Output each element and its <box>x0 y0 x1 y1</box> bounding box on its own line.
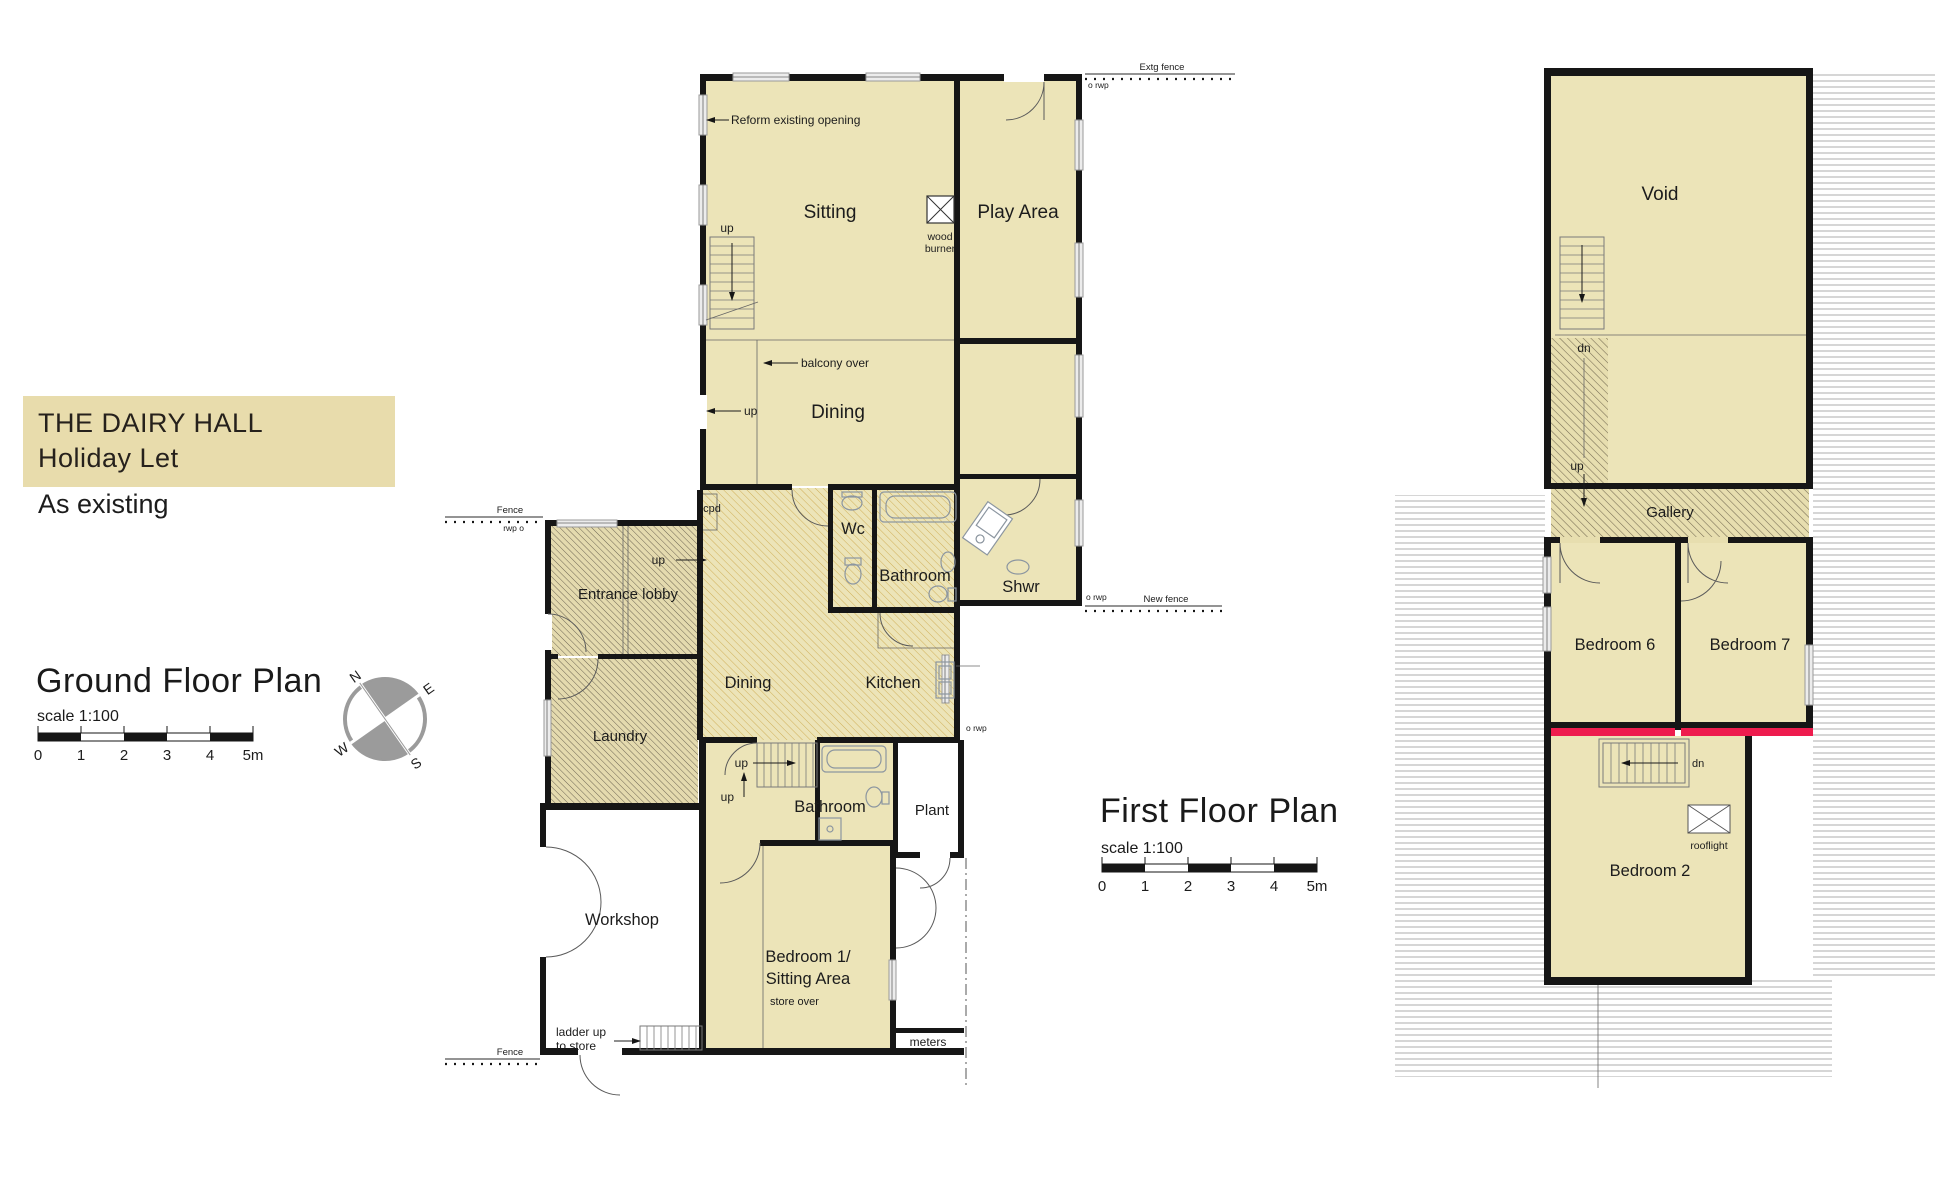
room-label-play-area: Play Area <box>977 202 1059 223</box>
room-label-bathroom-upper: Bathroom <box>879 567 951 585</box>
room-plant <box>898 740 960 855</box>
rooflight-icon <box>1688 805 1730 833</box>
scale-tick: 1 <box>77 747 85 764</box>
roof-left <box>1395 495 1545 977</box>
room-label-dining-upper: Dining <box>811 402 865 423</box>
annotation-up: up <box>744 404 758 418</box>
annotation-rooflight: rooflight <box>1690 840 1727 852</box>
annotation-balcony-over: balcony over <box>801 356 869 370</box>
room-label-plant: Plant <box>915 802 950 819</box>
annotation-dn: dn <box>1577 341 1590 355</box>
room-workshop <box>546 810 698 1050</box>
scale-tick: 3 <box>1227 878 1235 895</box>
room-label-gallery: Gallery <box>1646 504 1694 521</box>
highlight-wall-red <box>1551 728 1675 736</box>
room-label-bedroom7: Bedroom 7 <box>1710 636 1791 654</box>
floor-plan-sheet: THE DAIRY HALL Holiday Let As existing G… <box>0 0 1955 1180</box>
door-opening <box>920 852 950 858</box>
scale-tick: 3 <box>163 747 171 764</box>
compass-letter-e: E <box>420 679 437 697</box>
room-label-void: Void <box>1642 184 1679 205</box>
drawing-status: As existing <box>38 489 169 520</box>
scale-tick: 0 <box>1098 878 1106 895</box>
room-label-laundry: Laundry <box>593 728 648 745</box>
room-label-wc: Wc <box>841 520 865 538</box>
door-opening <box>1560 537 1600 543</box>
scale-tick: 0 <box>34 747 42 764</box>
room-bedroom1 <box>703 843 893 1050</box>
room-wc-bathroom-band <box>833 488 959 609</box>
room-bedroom2 <box>1551 736 1748 977</box>
annotation-up: up <box>720 221 734 235</box>
room-label-bedroom2: Bedroom 2 <box>1610 862 1691 880</box>
annotation-fence: Fence <box>497 1047 523 1058</box>
compass-letter-n: N <box>346 667 363 686</box>
title-block: THE DAIRY HALL Holiday Let <box>23 396 395 487</box>
room-label-dining-main: Dining <box>725 674 772 692</box>
room-label-sitting: Sitting <box>804 202 857 223</box>
project-subtitle: Holiday Let <box>38 441 395 476</box>
room-label-bedroom1: Bedroom 1/ <box>765 948 851 966</box>
first-floor-plan: dn up dn rooflight Void Gallery Bedroom … <box>1080 50 1955 1095</box>
annotation-reform: Reform existing opening <box>731 113 860 127</box>
scale-tick: 5m <box>1307 878 1328 895</box>
room-right <box>960 343 1078 476</box>
door-opening <box>544 614 552 650</box>
annotation-ladder: to store <box>556 1039 596 1053</box>
room-label-shwr: Shwr <box>1002 578 1040 596</box>
annotation-cpd: cpd <box>703 503 721 515</box>
highlight-wall-red <box>1681 728 1813 736</box>
annotation-meters: meters <box>910 1035 947 1049</box>
scale-tick: 4 <box>1270 878 1278 895</box>
annotation-wood-burner: burner <box>925 243 956 255</box>
compass-letter-s: S <box>408 754 425 772</box>
annotation-rwp: rwp o <box>503 523 524 533</box>
annotation-fence: Fence <box>497 505 523 516</box>
roof-right <box>1813 72 1935 977</box>
compass-letter-w: W <box>332 739 353 760</box>
scale-tick: 4 <box>206 747 214 764</box>
annotation-wood-burner: wood <box>926 231 952 243</box>
room-label-bathroom-lower: Bathroom <box>794 798 866 816</box>
scale-bar: 0 1 2 3 4 5m <box>34 726 264 764</box>
door-opening <box>1004 73 1044 82</box>
scale-tick: 5m <box>243 747 264 764</box>
room-label-workshop: Workshop <box>585 911 659 929</box>
scale-tick: 2 <box>1184 878 1192 895</box>
annotation-up: up <box>652 553 666 567</box>
wood-burner-icon <box>927 196 954 223</box>
annotation-rwp: o rwp <box>966 723 987 733</box>
annotation-up: up <box>1570 459 1584 473</box>
scale-tick: 2 <box>120 747 128 764</box>
annotation-store-over: store over <box>770 996 819 1008</box>
annotation-dn: dn <box>1692 758 1704 770</box>
project-title: THE DAIRY HALL <box>38 406 395 441</box>
ground-floor-scalebar-compass: 0 1 2 3 4 5m N E S W <box>0 650 460 800</box>
scale-bar: 0 1 2 3 4 5m <box>1098 857 1328 895</box>
door-opening <box>699 395 707 429</box>
annotation-ladder: ladder up <box>556 1025 606 1039</box>
door-opening <box>1688 537 1728 543</box>
annotation-up: up <box>721 790 735 804</box>
room-label-entrance-lobby: Entrance lobby <box>578 586 679 603</box>
roof-bottom <box>1395 977 1832 1077</box>
room-label-bedroom1: Sitting Area <box>766 970 851 988</box>
room-label-bedroom6: Bedroom 6 <box>1575 636 1656 654</box>
room-label-kitchen: Kitchen <box>865 674 920 692</box>
scale-tick: 1 <box>1141 878 1149 895</box>
annotation-up: up <box>735 756 749 770</box>
